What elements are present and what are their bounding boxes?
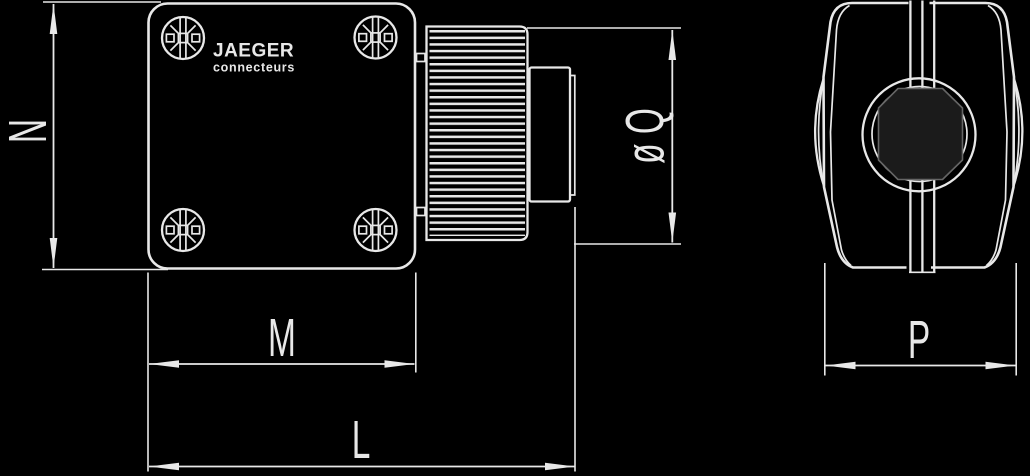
brand-subtitle: connecteurs	[213, 61, 295, 75]
insert-octagon	[879, 89, 963, 180]
brand-logo: JAEGER connecteurs	[213, 41, 295, 75]
dim-label-n: N	[0, 119, 58, 143]
dim-label-l: L	[352, 409, 371, 470]
coupling-nut	[427, 27, 528, 241]
brand-name: JAEGER	[213, 41, 294, 62]
dim-label-m: M	[268, 307, 296, 368]
connector-technical-drawing: JAEGER connecteurs	[0, 0, 1030, 476]
dim-label-p: P	[908, 309, 930, 370]
knurling	[430, 30, 526, 236]
dim-label-q: ø Q	[614, 108, 675, 164]
